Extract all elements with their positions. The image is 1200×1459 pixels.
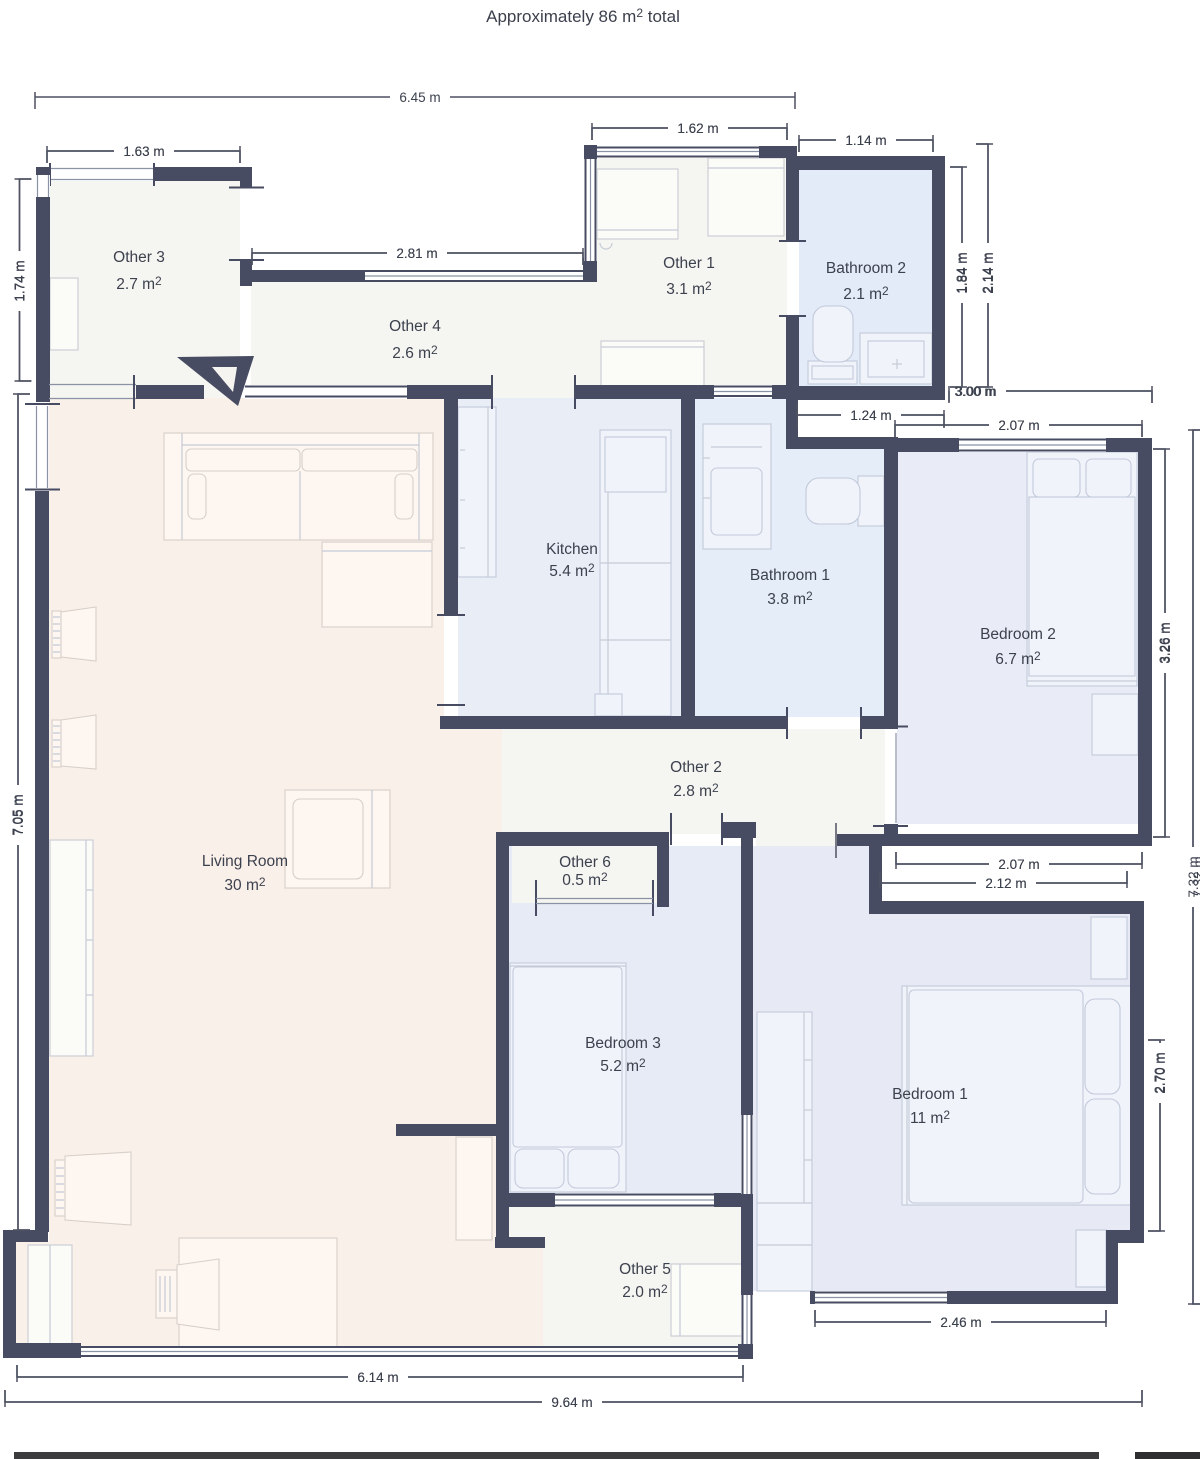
svg-text:Bedroom 2: Bedroom 2: [980, 626, 1056, 643]
svg-text:Other 1: Other 1: [663, 255, 715, 272]
svg-text:1.84 m: 1.84 m: [954, 252, 969, 293]
svg-text:7.05 m: 7.05 m: [10, 794, 25, 835]
svg-text:Bathroom 1: Bathroom 1: [750, 567, 830, 584]
svg-text:2.81 m: 2.81 m: [396, 246, 437, 261]
svg-text:6.14 m: 6.14 m: [357, 1370, 398, 1385]
svg-text:Living Room: Living Room: [202, 853, 288, 870]
svg-text:6.45 m: 6.45 m: [399, 90, 440, 105]
svg-text:Other 2: Other 2: [670, 759, 722, 776]
svg-text:2.46 m: 2.46 m: [940, 1315, 981, 1330]
svg-text:Other 5: Other 5: [619, 1261, 671, 1278]
svg-text:1.63 m: 1.63 m: [123, 144, 164, 159]
svg-text:Other 3: Other 3: [113, 249, 165, 266]
svg-text:2.07 m: 2.07 m: [998, 418, 1039, 433]
svg-text:7.32 m: 7.32 m: [1191, 856, 1200, 897]
svg-text:2.07 m: 2.07 m: [998, 857, 1039, 872]
svg-text:2.14 m: 2.14 m: [980, 252, 995, 293]
svg-text:Other 6: Other 6: [559, 854, 611, 871]
svg-text:3.26 m: 3.26 m: [1157, 622, 1172, 663]
svg-text:2.12 m: 2.12 m: [985, 876, 1026, 891]
svg-text:1.14 m: 1.14 m: [845, 133, 886, 148]
svg-text:Other 4: Other 4: [389, 318, 441, 335]
svg-text:3.00 m: 3.00 m: [954, 384, 995, 399]
svg-text:9.64 m: 9.64 m: [551, 1395, 592, 1410]
svg-text:Approximately 86 m2 total: Approximately 86 m2 total: [486, 6, 680, 26]
svg-text:2.70 m: 2.70 m: [1152, 1052, 1167, 1093]
svg-text:Bedroom 3: Bedroom 3: [585, 1035, 661, 1052]
svg-text:Bedroom 1: Bedroom 1: [892, 1086, 968, 1103]
svg-text:Kitchen: Kitchen: [546, 541, 598, 558]
svg-text:1.62 m: 1.62 m: [677, 121, 718, 136]
svg-text:Bathroom 2: Bathroom 2: [826, 260, 906, 277]
svg-text:1.24 m: 1.24 m: [850, 408, 891, 423]
svg-text:1.74 m: 1.74 m: [12, 260, 27, 301]
